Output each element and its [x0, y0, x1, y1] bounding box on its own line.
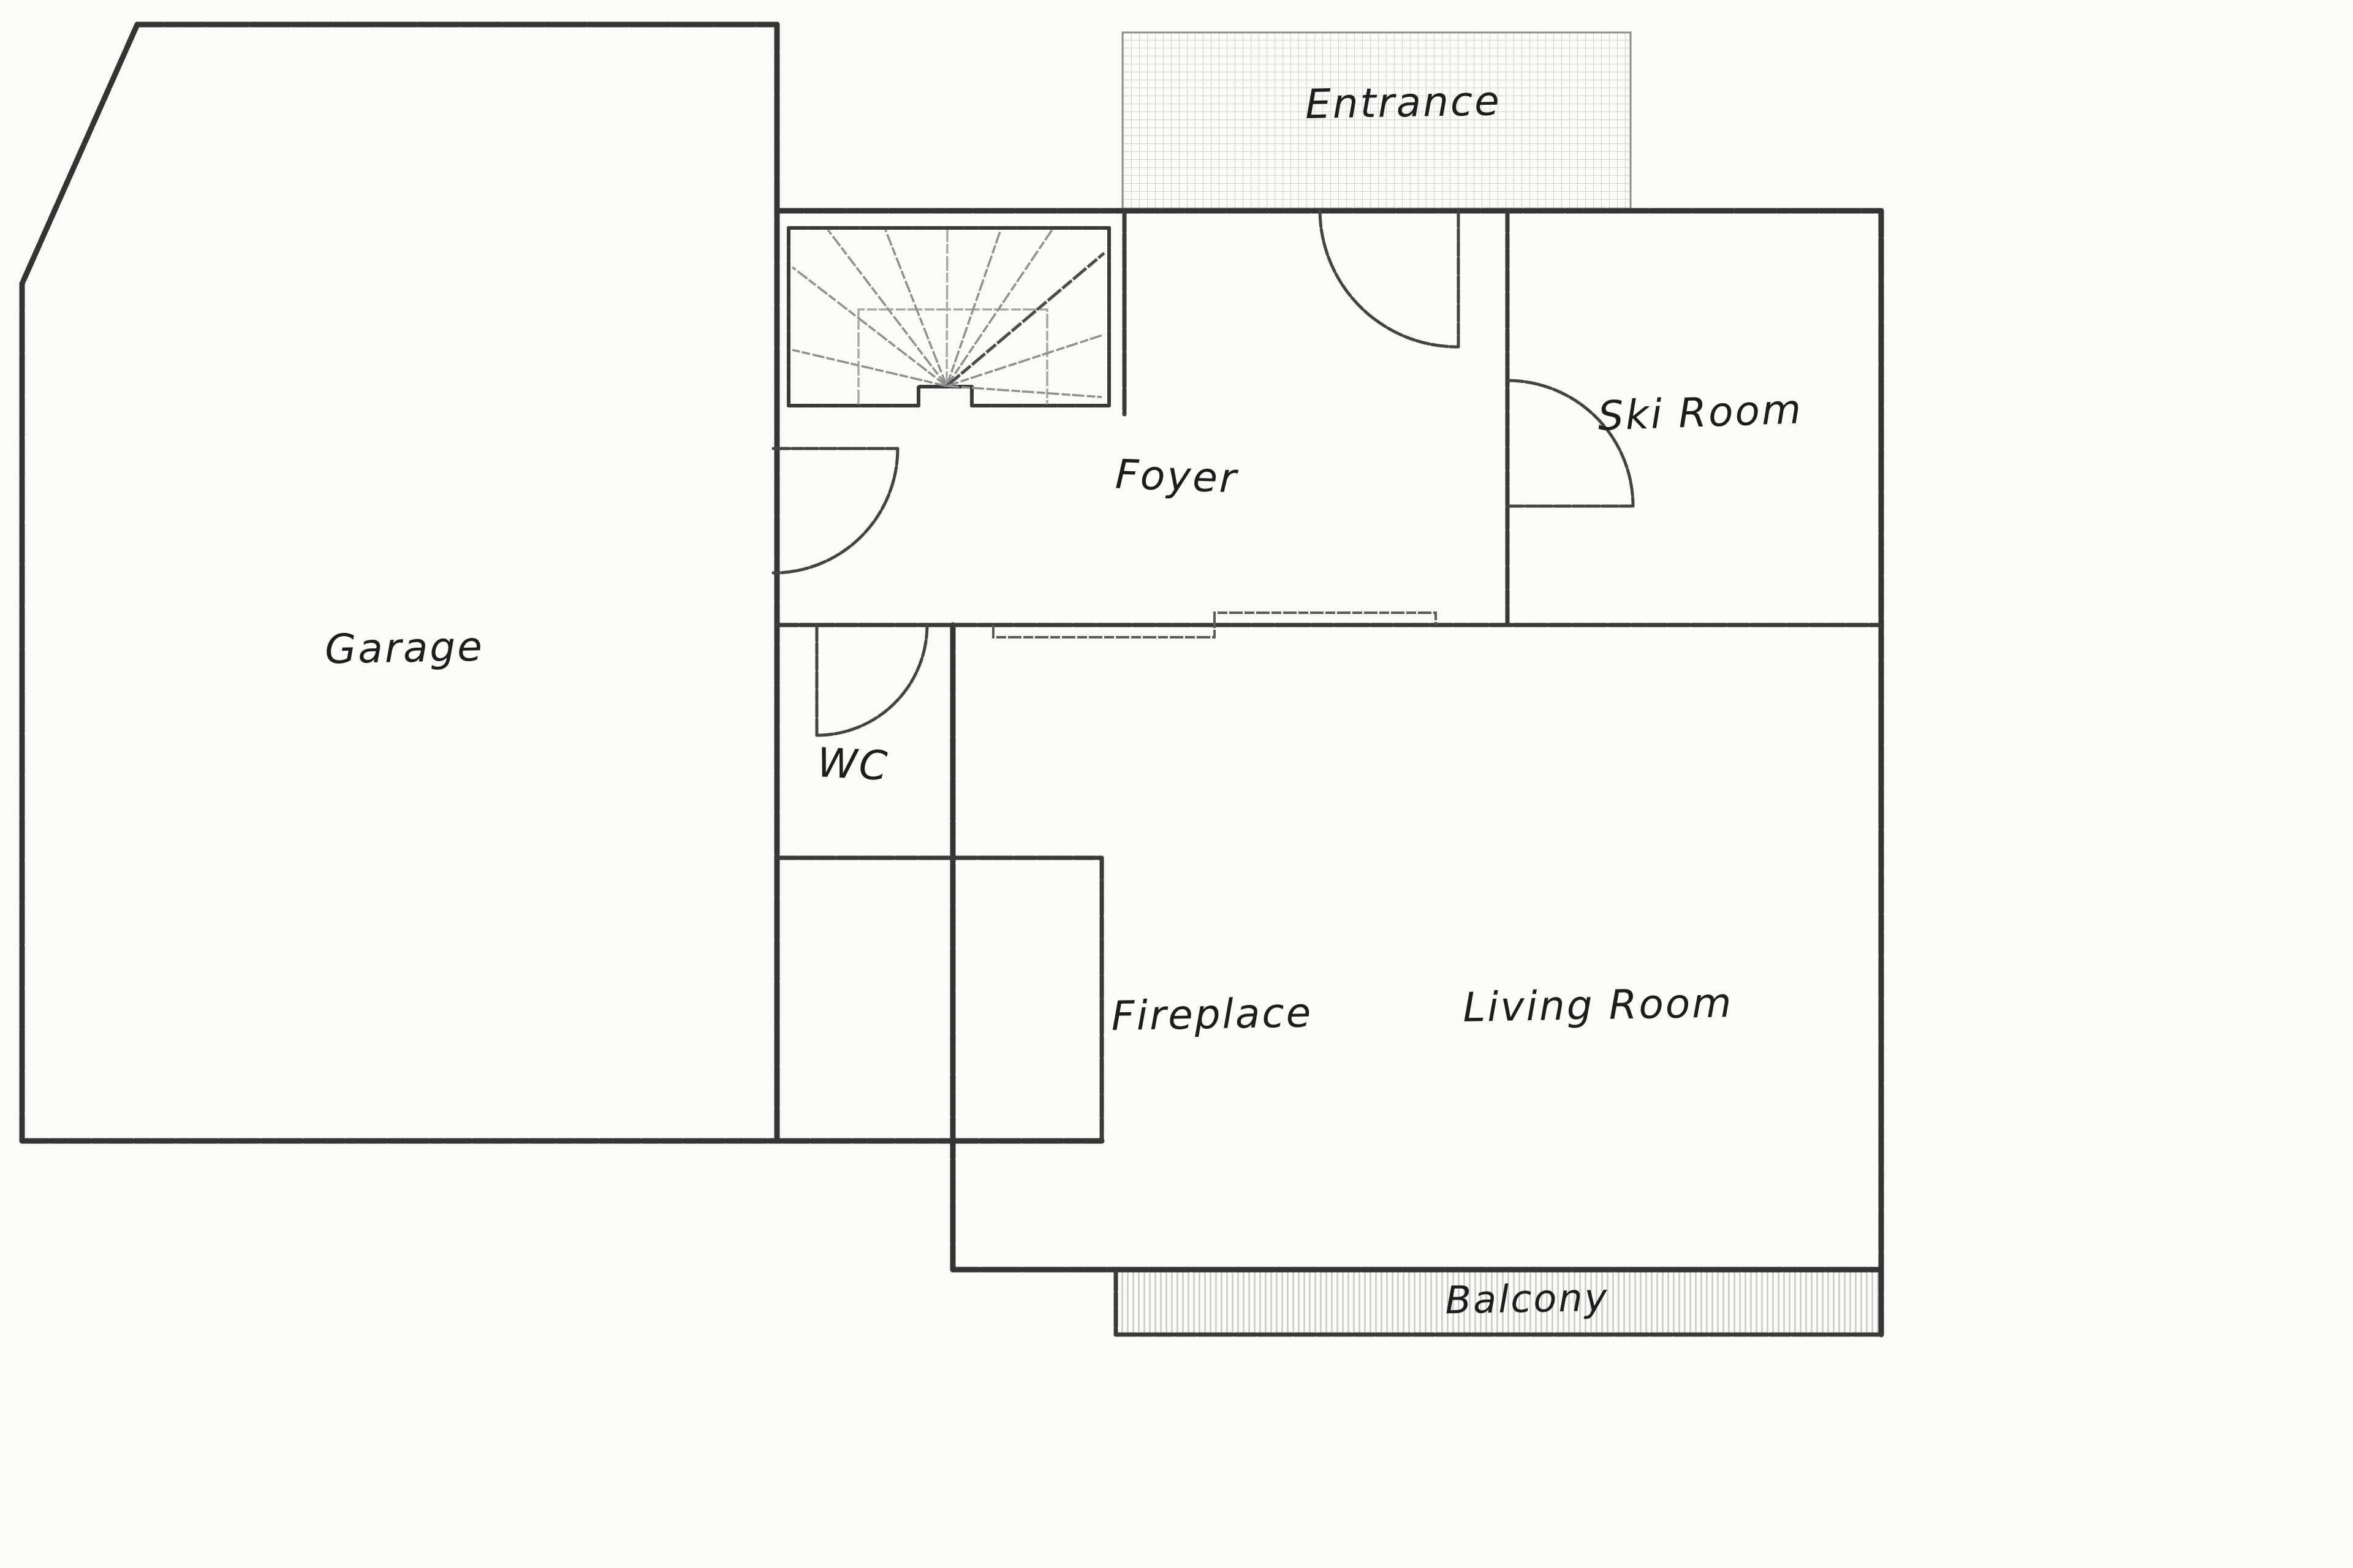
room-label-foyer: Foyer: [1115, 451, 1240, 502]
room-label-entrance: Entrance: [1305, 77, 1501, 128]
room-label-wc: WC: [816, 739, 890, 790]
room-label-fireplace: Fireplace: [1111, 989, 1313, 1040]
room-label-garage: Garage: [324, 623, 484, 673]
room-label-ski-room: Ski Room: [1597, 385, 1803, 440]
room-label-living-room: Living Room: [1463, 979, 1733, 1031]
room-label-balcony: Balcony: [1445, 1275, 1609, 1323]
floor-plan-canvas: Entrance Foyer Ski Room Garage WC Firepl…: [0, 0, 2353, 1568]
floor-plan-page: Entrance Foyer Ski Room Garage WC Firepl…: [0, 0, 2353, 1568]
